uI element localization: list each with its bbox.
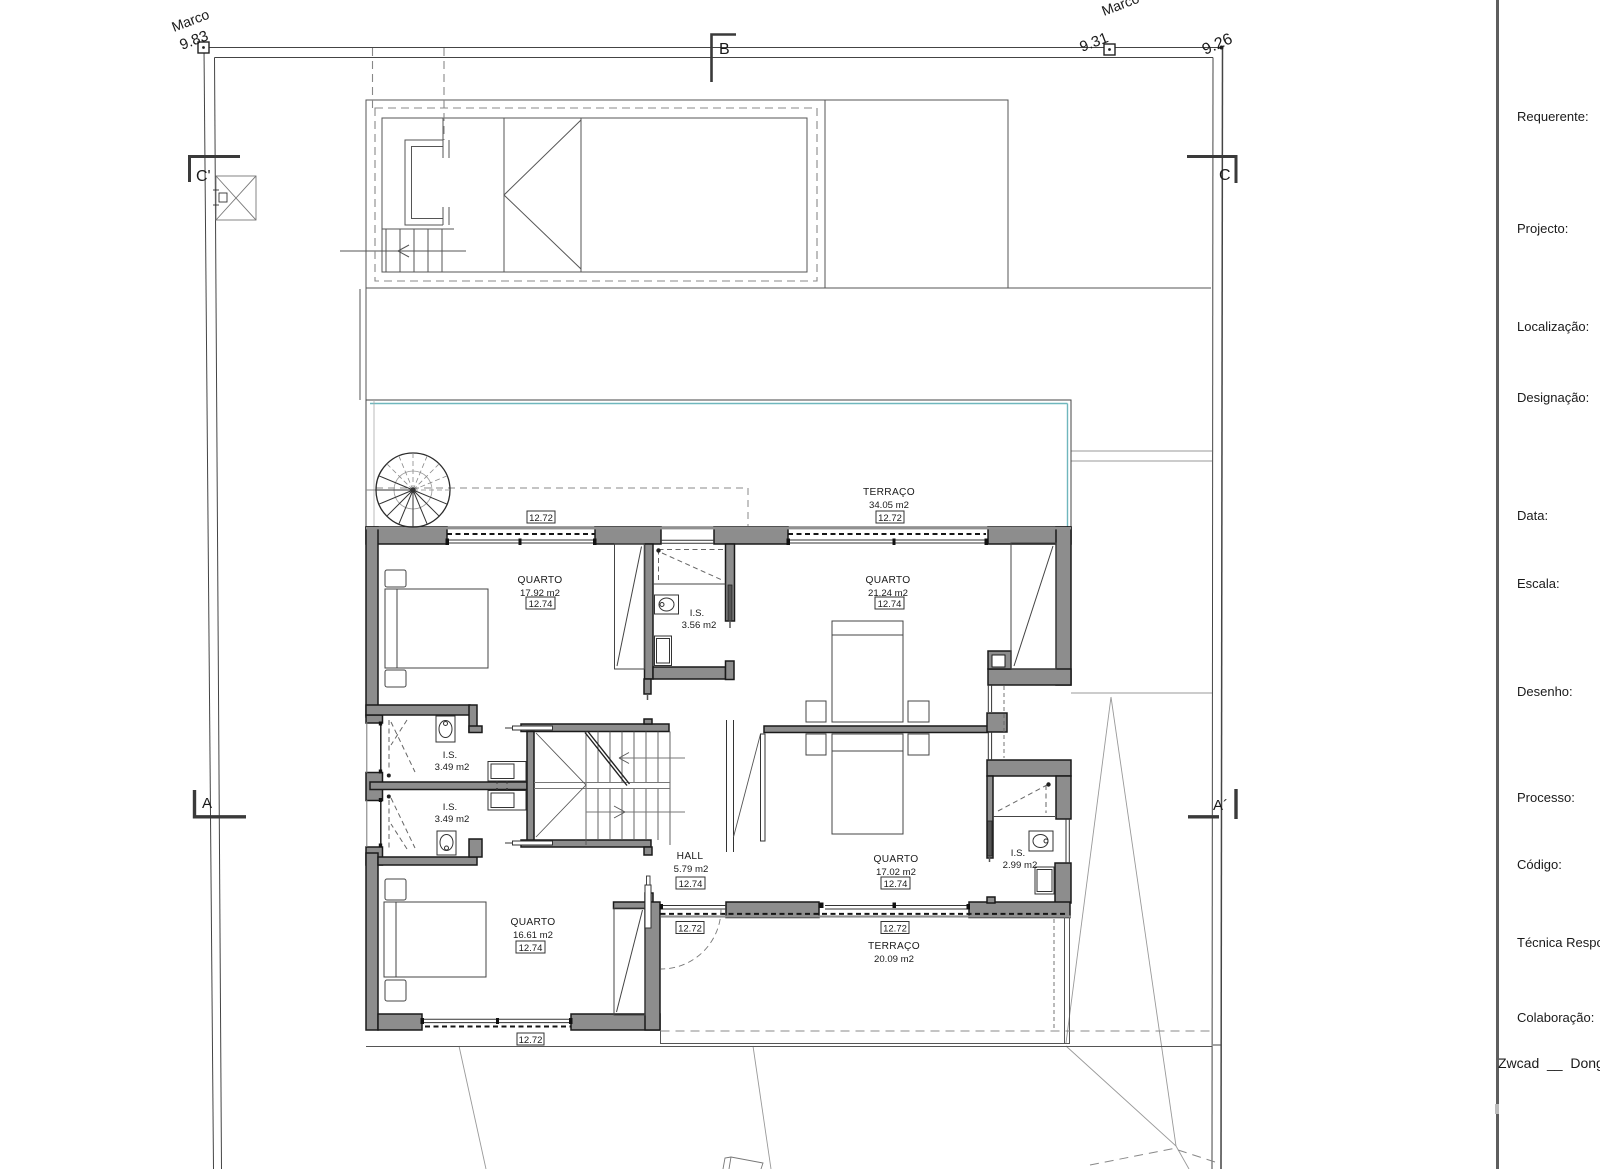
svg-text:12.74: 12.74 — [878, 599, 902, 610]
svg-text:12.72: 12.72 — [529, 513, 553, 524]
svg-text:B: B — [719, 41, 730, 58]
svg-text:I.S.: I.S. — [443, 802, 457, 813]
svg-text:12.72: 12.72 — [878, 513, 902, 524]
svg-text:Designação:: Designação: — [1517, 390, 1589, 405]
svg-text:QUARTO: QUARTO — [873, 854, 918, 865]
svg-text:QUARTO: QUARTO — [510, 917, 555, 928]
svg-text:Processo:: Processo: — [1517, 790, 1575, 805]
svg-text:TERRAÇO: TERRAÇO — [868, 941, 920, 952]
svg-text:20.09 m2: 20.09 m2 — [874, 954, 914, 965]
svg-text:I.S.: I.S. — [690, 608, 704, 619]
svg-text:5.79 m2: 5.79 m2 — [674, 864, 709, 875]
svg-text:Escala:: Escala: — [1517, 576, 1560, 591]
svg-text:3.49 m2: 3.49 m2 — [435, 762, 470, 773]
svg-text:I.S.: I.S. — [443, 750, 457, 761]
svg-text:16.61 m2: 16.61 m2 — [513, 930, 553, 941]
svg-text:12.74: 12.74 — [529, 599, 553, 610]
svg-text:Data:: Data: — [1517, 508, 1548, 523]
svg-text:12.74: 12.74 — [519, 943, 543, 954]
svg-text:HALL: HALL — [677, 851, 704, 862]
svg-text:A: A — [202, 795, 212, 812]
svg-text:Localização:: Localização: — [1517, 319, 1589, 334]
svg-text:I.S.: I.S. — [1011, 848, 1025, 859]
svg-text:12.74: 12.74 — [884, 879, 908, 890]
svg-text:Desenho:: Desenho: — [1517, 684, 1573, 699]
svg-text:17.02 m2: 17.02 m2 — [876, 867, 916, 878]
svg-text:12.72: 12.72 — [678, 924, 702, 935]
svg-text:QUARTO: QUARTO — [517, 575, 562, 586]
svg-text:Colaboração:: Colaboração: — [1517, 1010, 1594, 1025]
svg-text:Zwcad __ Dong: Zwcad __ Dong — [1498, 1055, 1600, 1071]
svg-text:Projecto:: Projecto: — [1517, 221, 1568, 236]
svg-text:Requerente:: Requerente: — [1517, 109, 1589, 124]
svg-text:12.74: 12.74 — [679, 879, 703, 890]
svg-text:3.56 m2: 3.56 m2 — [682, 620, 717, 631]
svg-text:34.05 m2: 34.05 m2 — [869, 500, 909, 511]
svg-text:C': C' — [196, 168, 211, 185]
svg-text:12.72: 12.72 — [519, 1035, 543, 1046]
svg-text:2.99 m2: 2.99 m2 — [1003, 860, 1038, 871]
svg-text:3.49 m2: 3.49 m2 — [435, 814, 470, 825]
svg-text:12.72: 12.72 — [883, 924, 907, 935]
svg-text:Código:: Código: — [1517, 857, 1562, 872]
svg-text:TERRAÇO: TERRAÇO — [863, 487, 915, 498]
svg-text:Técnica Responsável:: Técnica Responsável: — [1517, 935, 1600, 950]
svg-text:C: C — [1219, 167, 1231, 184]
svg-text:QUARTO: QUARTO — [865, 575, 910, 586]
svg-text:A´: A´ — [1213, 797, 1228, 814]
